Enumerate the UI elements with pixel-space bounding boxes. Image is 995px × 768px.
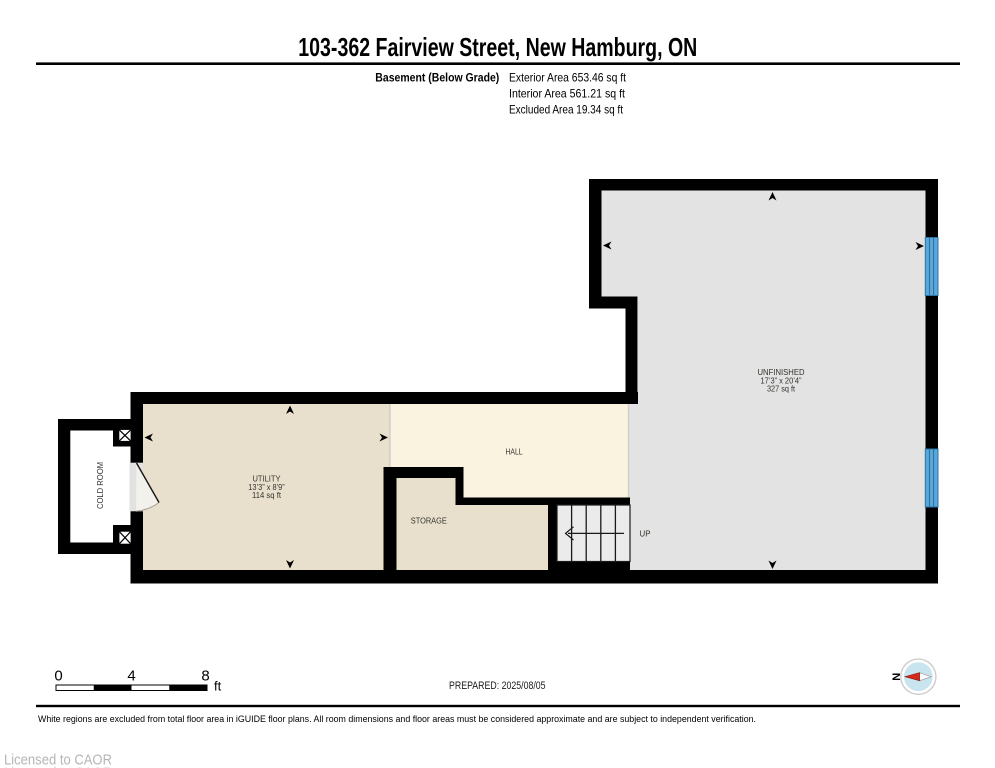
svg-text:Interior Area 561.21 sq ft: Interior Area 561.21 sq ft bbox=[509, 86, 626, 100]
svg-text:103-362 Fairview Street, New H: 103-362 Fairview Street, New Hamburg, ON bbox=[298, 32, 697, 62]
svg-text:Excluded Area 19.34 sq ft: Excluded Area 19.34 sq ft bbox=[509, 102, 624, 116]
svg-text:STORAGE: STORAGE bbox=[411, 516, 447, 525]
svg-text:114 sq ft: 114 sq ft bbox=[252, 491, 282, 500]
svg-text:8: 8 bbox=[201, 668, 209, 685]
svg-text:PREPARED: 2025/08/05: PREPARED: 2025/08/05 bbox=[449, 680, 546, 692]
svg-text:Exterior Area 653.46 sq ft: Exterior Area 653.46 sq ft bbox=[509, 71, 627, 85]
svg-text:Basement (Below Grade): Basement (Below Grade) bbox=[375, 71, 499, 85]
svg-text:HALL: HALL bbox=[506, 447, 523, 456]
svg-text:4: 4 bbox=[127, 668, 135, 685]
svg-text:COLD ROOM: COLD ROOM bbox=[96, 462, 105, 509]
svg-text:White regions are excluded fro: White regions are excluded from total fl… bbox=[38, 714, 756, 724]
svg-text:Licensed to CAOR: Licensed to CAOR bbox=[4, 764, 112, 768]
svg-text:0: 0 bbox=[54, 668, 62, 685]
svg-text:ft: ft bbox=[214, 679, 222, 694]
svg-text:UP: UP bbox=[640, 530, 651, 539]
svg-text:327 sq ft: 327 sq ft bbox=[767, 384, 796, 393]
svg-text:N: N bbox=[891, 673, 903, 681]
